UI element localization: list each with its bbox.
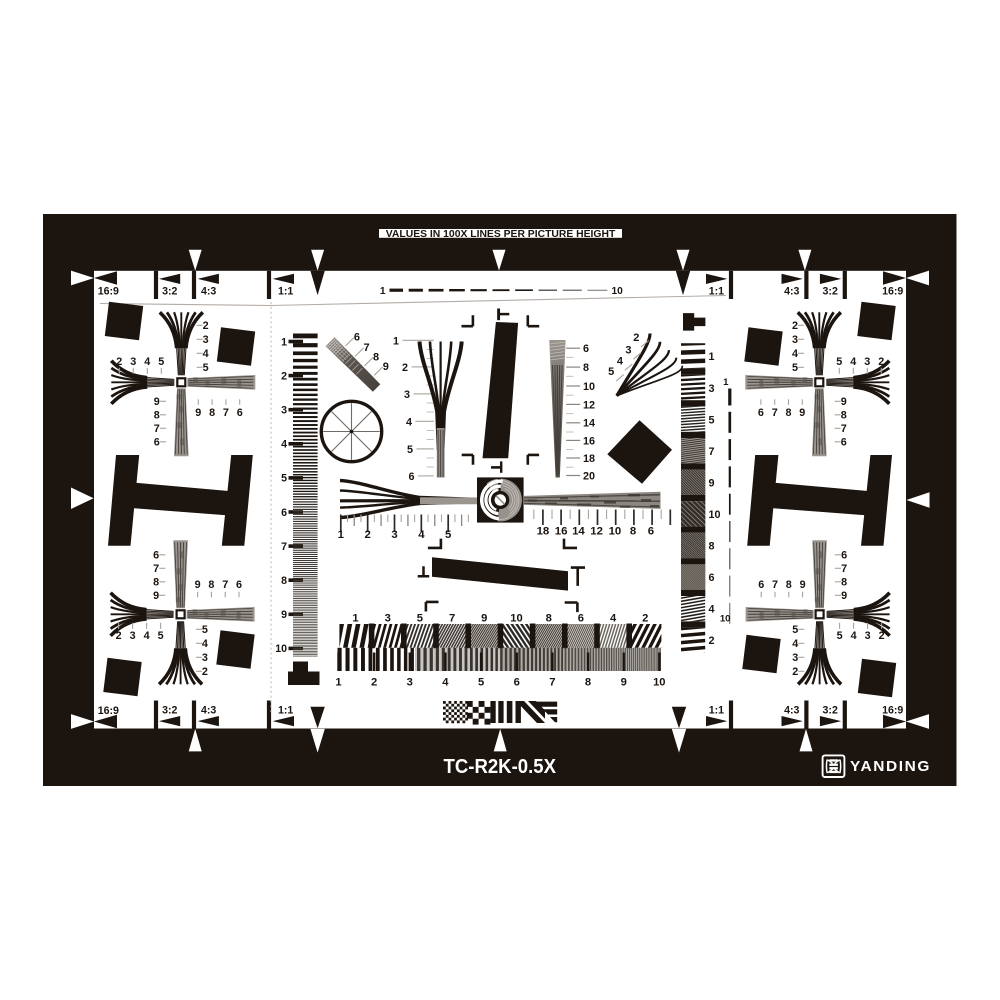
svg-text:1:1: 1:1 — [278, 705, 293, 717]
svg-text:2: 2 — [792, 666, 798, 678]
svg-text:4:3: 4:3 — [201, 285, 216, 297]
svg-text:16:9: 16:9 — [98, 705, 119, 717]
svg-text:3:2: 3:2 — [162, 705, 177, 717]
svg-text:5: 5 — [836, 356, 842, 368]
svg-text:8: 8 — [841, 577, 847, 589]
svg-text:3:2: 3:2 — [823, 285, 838, 297]
svg-text:8: 8 — [841, 410, 847, 422]
svg-text:3: 3 — [385, 613, 391, 625]
svg-text:4: 4 — [281, 439, 287, 451]
svg-text:3: 3 — [792, 652, 798, 664]
svg-text:12: 12 — [583, 399, 595, 411]
svg-text:4:3: 4:3 — [201, 705, 216, 717]
svg-text:9: 9 — [621, 677, 627, 689]
svg-text:18: 18 — [583, 453, 595, 465]
svg-text:3: 3 — [709, 383, 715, 395]
svg-text:4: 4 — [203, 348, 209, 360]
svg-text:2: 2 — [879, 630, 885, 642]
svg-text:16:9: 16:9 — [882, 705, 903, 717]
svg-text:1: 1 — [281, 336, 287, 348]
svg-text:8: 8 — [209, 407, 215, 419]
svg-text:4: 4 — [144, 630, 150, 642]
svg-text:8: 8 — [373, 352, 379, 364]
svg-text:5: 5 — [202, 624, 208, 636]
svg-text:9: 9 — [195, 579, 201, 591]
svg-text:3: 3 — [281, 405, 287, 417]
svg-text:5: 5 — [792, 624, 798, 636]
svg-text:3: 3 — [130, 630, 136, 642]
svg-text:9: 9 — [154, 396, 160, 408]
svg-text:2: 2 — [202, 666, 208, 678]
svg-text:9: 9 — [841, 590, 847, 602]
svg-text:8: 8 — [208, 579, 214, 591]
svg-text:3: 3 — [625, 345, 631, 357]
svg-text:TC-R2K-0.5X: TC-R2K-0.5X — [444, 755, 557, 778]
svg-text:6: 6 — [354, 332, 360, 344]
svg-text:4: 4 — [850, 356, 856, 368]
svg-text:8: 8 — [585, 677, 591, 689]
svg-text:4: 4 — [851, 630, 857, 642]
svg-text:1: 1 — [393, 335, 399, 347]
svg-text:5: 5 — [417, 613, 423, 625]
svg-text:3:2: 3:2 — [823, 705, 838, 717]
svg-text:8: 8 — [785, 407, 791, 419]
svg-text:2: 2 — [281, 370, 287, 382]
svg-text:1:1: 1:1 — [709, 705, 724, 717]
svg-text:5: 5 — [158, 356, 164, 368]
svg-text:4: 4 — [792, 348, 798, 360]
svg-text:16: 16 — [583, 435, 595, 447]
svg-text:3: 3 — [407, 677, 413, 689]
svg-text:9: 9 — [841, 396, 847, 408]
svg-text:5: 5 — [837, 630, 843, 642]
svg-text:2: 2 — [792, 320, 798, 332]
svg-text:6: 6 — [514, 677, 520, 689]
svg-text:6: 6 — [281, 507, 287, 519]
svg-text:9: 9 — [799, 407, 805, 419]
svg-text:12: 12 — [590, 526, 603, 538]
svg-text:7: 7 — [841, 563, 847, 575]
svg-text:5: 5 — [203, 362, 209, 374]
svg-text:6: 6 — [841, 437, 847, 449]
svg-text:VALUES IN 100X LINES PER PICTU: VALUES IN 100X LINES PER PICTURE HEIGHT — [386, 229, 616, 240]
svg-text:2: 2 — [402, 362, 408, 374]
svg-text:7: 7 — [449, 613, 455, 625]
svg-text:6: 6 — [758, 579, 764, 591]
svg-text:8: 8 — [786, 579, 792, 591]
svg-text:7: 7 — [223, 407, 229, 419]
svg-text:6: 6 — [408, 471, 414, 483]
svg-text:3: 3 — [404, 389, 410, 401]
svg-text:6: 6 — [153, 550, 159, 562]
svg-text:8: 8 — [281, 575, 287, 587]
svg-text:5: 5 — [608, 366, 614, 378]
svg-text:10: 10 — [609, 526, 622, 538]
svg-text:16:9: 16:9 — [98, 285, 119, 297]
svg-text:3: 3 — [864, 356, 870, 368]
svg-text:10: 10 — [720, 614, 731, 625]
svg-text:2: 2 — [116, 630, 122, 642]
svg-text:9: 9 — [281, 609, 287, 621]
svg-text:7: 7 — [364, 342, 370, 354]
svg-text:10: 10 — [510, 613, 522, 625]
svg-text:18: 18 — [537, 526, 550, 538]
svg-text:4: 4 — [202, 638, 208, 650]
svg-text:5: 5 — [445, 529, 452, 541]
svg-text:8: 8 — [546, 613, 552, 625]
svg-text:9: 9 — [383, 361, 389, 373]
svg-text:4:3: 4:3 — [784, 285, 799, 297]
svg-text:3: 3 — [202, 652, 208, 664]
svg-text:8: 8 — [583, 362, 589, 374]
svg-text:3: 3 — [865, 630, 871, 642]
svg-text:2: 2 — [878, 356, 884, 368]
svg-text:10: 10 — [275, 643, 287, 655]
svg-text:6: 6 — [709, 572, 715, 584]
svg-text:6: 6 — [648, 526, 654, 538]
svg-text:5: 5 — [158, 630, 164, 642]
svg-text:4: 4 — [617, 356, 624, 368]
svg-text:7: 7 — [222, 579, 228, 591]
svg-text:7: 7 — [772, 579, 778, 591]
svg-text:6: 6 — [583, 343, 589, 355]
svg-text:5: 5 — [407, 444, 413, 456]
svg-text:3: 3 — [391, 529, 397, 541]
svg-text:10: 10 — [583, 381, 595, 393]
svg-text:6: 6 — [841, 550, 847, 562]
svg-text:4: 4 — [709, 604, 715, 616]
svg-text:8: 8 — [153, 577, 159, 589]
svg-text:2: 2 — [709, 635, 715, 647]
svg-text:7: 7 — [153, 563, 159, 575]
svg-text:1: 1 — [338, 529, 345, 541]
svg-text:14: 14 — [583, 418, 595, 430]
svg-text:1: 1 — [709, 351, 715, 363]
svg-text:YANDING: YANDING — [850, 759, 931, 775]
svg-text:1: 1 — [335, 677, 341, 689]
svg-text:4: 4 — [418, 529, 425, 541]
svg-text:2: 2 — [642, 613, 648, 625]
svg-text:6: 6 — [758, 407, 764, 419]
svg-text:8: 8 — [709, 541, 715, 553]
svg-text:4: 4 — [406, 416, 412, 428]
svg-text:1: 1 — [723, 377, 729, 388]
svg-text:9: 9 — [709, 477, 715, 489]
svg-text:6: 6 — [578, 613, 584, 625]
svg-text:7: 7 — [772, 407, 778, 419]
svg-text:4: 4 — [144, 356, 150, 368]
svg-text:14: 14 — [572, 526, 585, 538]
svg-text:9: 9 — [481, 613, 487, 625]
svg-text:3: 3 — [792, 334, 798, 346]
svg-text:2: 2 — [365, 529, 371, 541]
svg-text:5: 5 — [792, 362, 798, 374]
svg-text:7: 7 — [549, 677, 555, 689]
svg-text:7: 7 — [841, 423, 847, 435]
svg-text:7: 7 — [281, 541, 287, 553]
svg-text:5: 5 — [281, 473, 287, 485]
svg-text:7: 7 — [154, 423, 160, 435]
svg-text:10: 10 — [653, 677, 665, 689]
svg-text:1: 1 — [352, 613, 358, 625]
svg-text:6: 6 — [237, 407, 243, 419]
svg-text:2: 2 — [116, 356, 122, 368]
svg-text:16:9: 16:9 — [882, 285, 903, 297]
svg-text:5: 5 — [709, 414, 715, 426]
svg-text:20: 20 — [583, 470, 595, 482]
svg-text:7: 7 — [709, 446, 715, 458]
svg-text:6: 6 — [236, 579, 242, 591]
svg-text:16: 16 — [555, 526, 568, 538]
svg-text:4:3: 4:3 — [784, 705, 799, 717]
svg-text:9: 9 — [800, 579, 806, 591]
svg-text:9: 9 — [153, 590, 159, 602]
svg-text:4: 4 — [442, 677, 449, 689]
svg-text:10: 10 — [709, 509, 721, 521]
svg-text:4: 4 — [610, 613, 617, 625]
svg-text:8: 8 — [630, 526, 636, 538]
svg-text:3: 3 — [130, 356, 136, 368]
svg-text:2: 2 — [371, 677, 377, 689]
svg-text:3: 3 — [203, 334, 209, 346]
svg-text:6: 6 — [154, 437, 160, 449]
svg-text:2: 2 — [633, 332, 639, 344]
svg-text:1: 1 — [380, 286, 386, 297]
svg-text:2: 2 — [203, 320, 209, 332]
svg-text:5: 5 — [478, 677, 484, 689]
svg-text:4: 4 — [792, 638, 798, 650]
svg-text:10: 10 — [612, 286, 624, 297]
svg-text:9: 9 — [195, 407, 201, 419]
svg-text:8: 8 — [154, 410, 160, 422]
svg-text:1:1: 1:1 — [278, 285, 293, 297]
svg-text:3:2: 3:2 — [162, 285, 177, 297]
